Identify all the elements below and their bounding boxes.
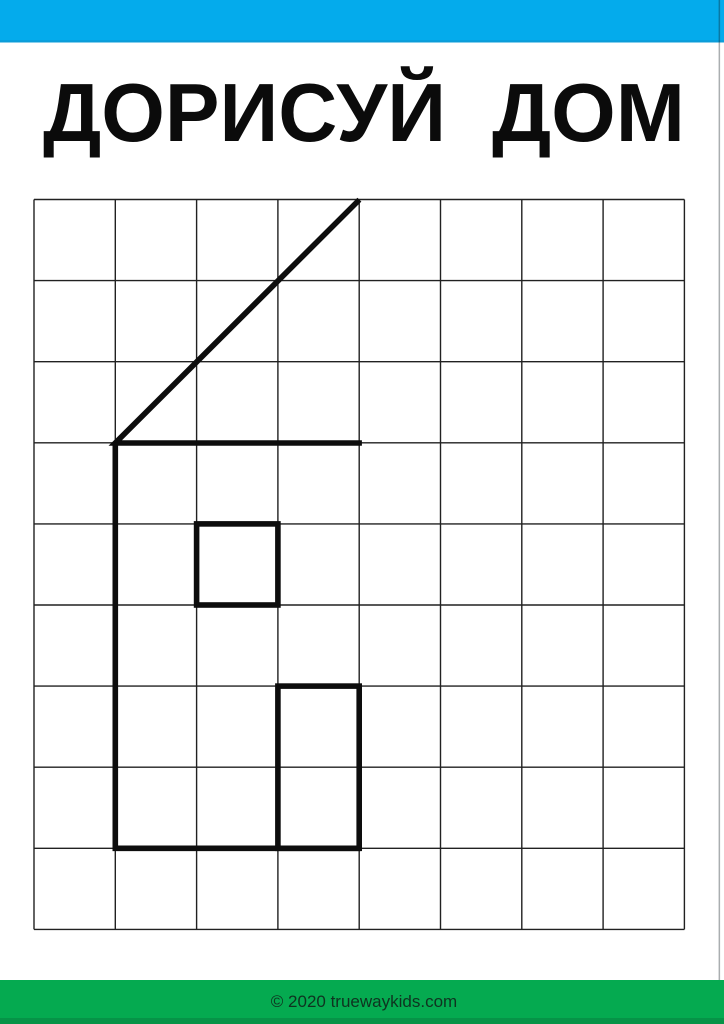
svg-text:© 2020 truewaykids.com: © 2020 truewaykids.com [271, 992, 457, 1011]
svg-text:ДОРИСУЙ: ДОРИСУЙ [43, 65, 446, 159]
svg-text:ДОМ: ДОМ [492, 66, 685, 159]
